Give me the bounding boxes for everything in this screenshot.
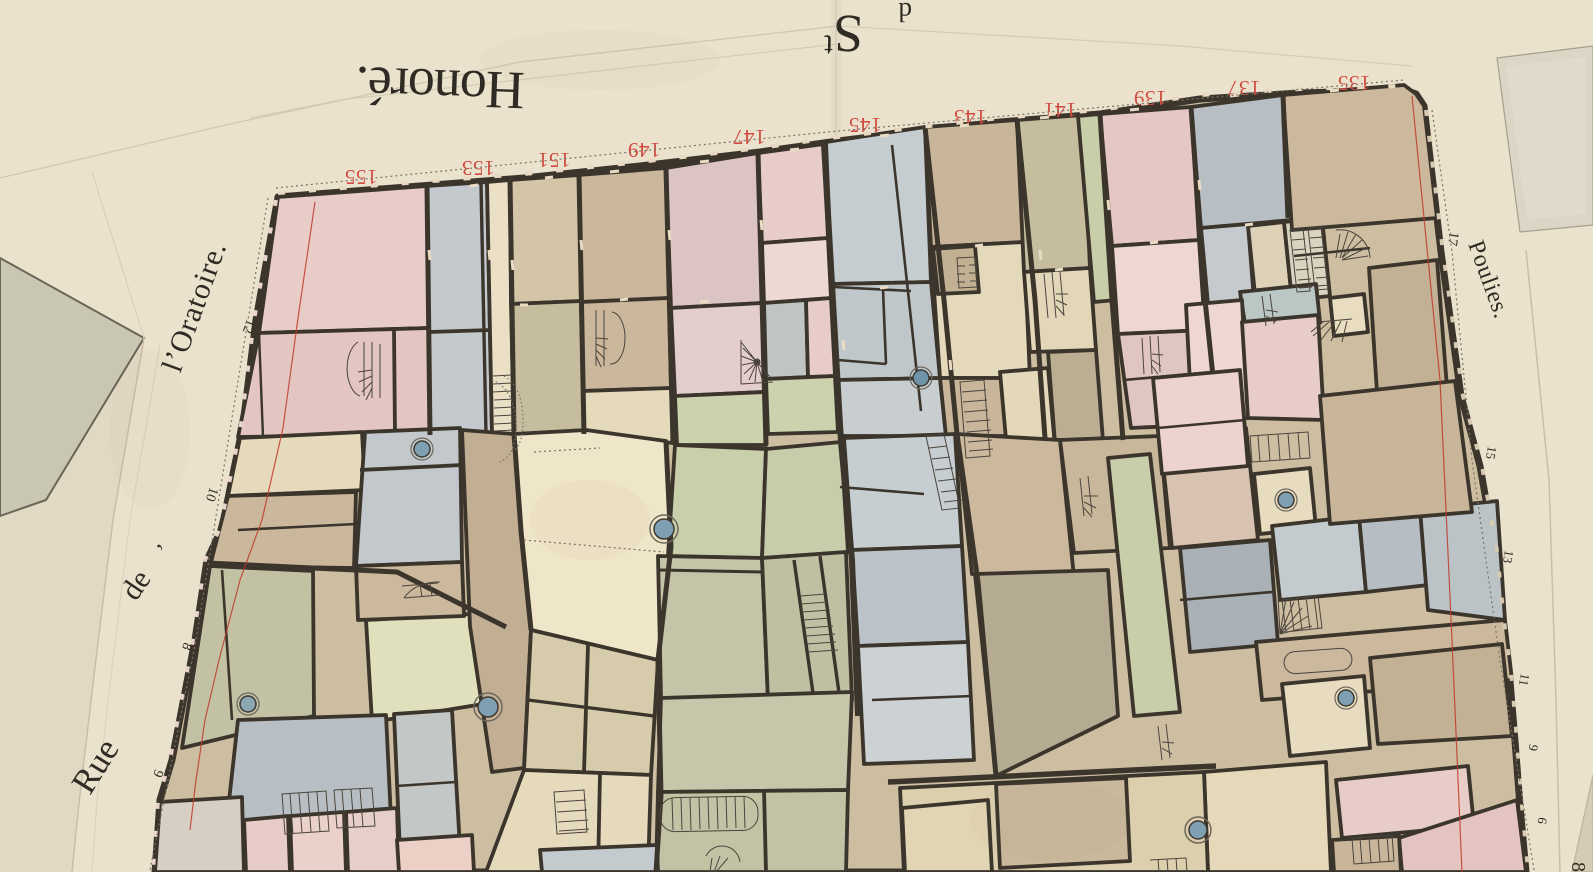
svg-text:88: 88 <box>1567 862 1589 872</box>
svg-text:d: d <box>898 0 912 27</box>
svg-text:S: S <box>832 4 863 65</box>
svg-text:t: t <box>823 28 833 64</box>
svg-text:135: 135 <box>1338 71 1371 95</box>
svg-text:11: 11 <box>1516 672 1533 687</box>
svg-text:13: 13 <box>1500 549 1517 564</box>
svg-text:153: 153 <box>462 156 495 180</box>
svg-text:17: 17 <box>1444 230 1461 246</box>
svg-text:139: 139 <box>1134 86 1167 110</box>
svg-text:151: 151 <box>538 148 571 172</box>
svg-text:Honoré.: Honoré. <box>355 55 525 121</box>
svg-text:147: 147 <box>733 125 766 149</box>
svg-text:143: 143 <box>954 105 987 129</box>
svg-text:15: 15 <box>1483 445 1500 460</box>
